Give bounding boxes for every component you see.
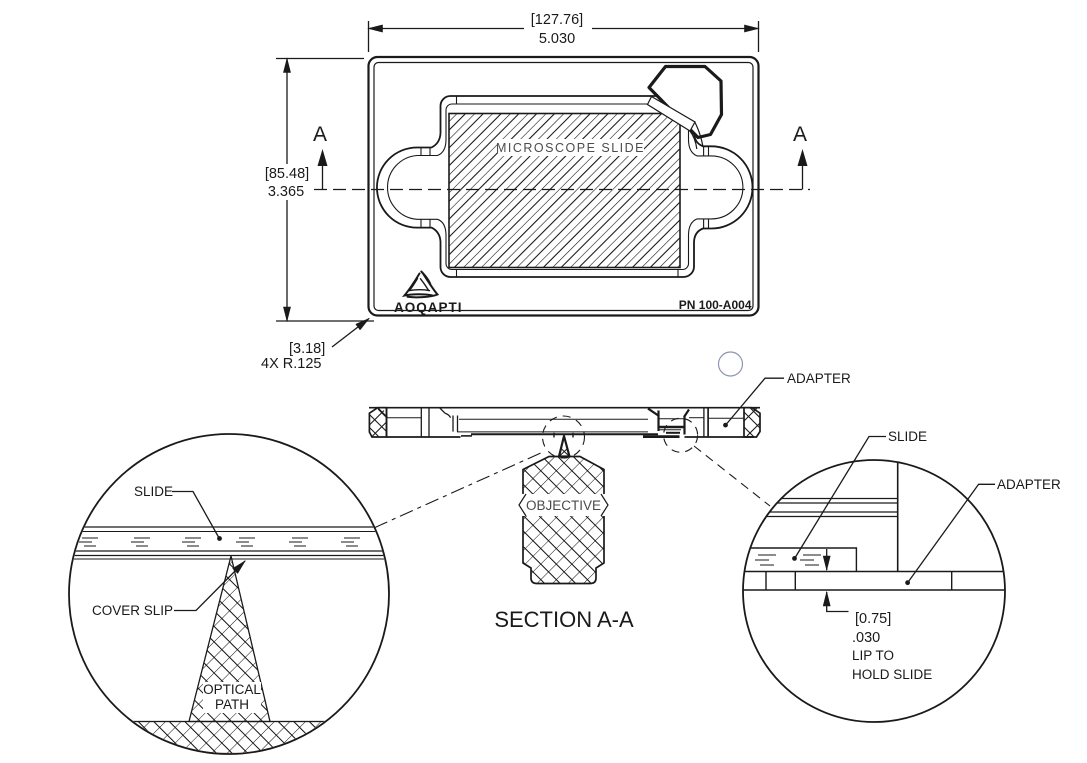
svg-text:5.030: 5.030 <box>539 31 575 47</box>
svg-text:[85.48]: [85.48] <box>265 166 309 182</box>
svg-text:A: A <box>313 123 327 146</box>
svg-text:AOQAPTI: AOQAPTI <box>394 300 463 315</box>
svg-text:[127.76]: [127.76] <box>531 12 583 28</box>
svg-text:LIP TO: LIP TO <box>852 648 894 663</box>
svg-text:SLIDE: SLIDE <box>134 484 173 499</box>
svg-text:A: A <box>793 123 807 146</box>
svg-text:SLIDE: SLIDE <box>888 429 927 444</box>
svg-text:ADAPTER: ADAPTER <box>997 477 1061 492</box>
svg-text:ADAPTER: ADAPTER <box>787 371 851 386</box>
svg-text:[3.18]: [3.18] <box>289 341 325 357</box>
svg-text:MICROSCOPE SLIDE: MICROSCOPE SLIDE <box>496 141 645 155</box>
svg-text:OPTICAL: OPTICAL <box>203 682 261 697</box>
svg-text:SECTION A-A: SECTION A-A <box>494 607 634 632</box>
svg-text:OBJECTIVE: OBJECTIVE <box>526 498 601 513</box>
svg-text:HOLD SLIDE: HOLD SLIDE <box>852 667 932 682</box>
svg-text:PATH: PATH <box>215 697 249 712</box>
svg-text:PN 100-A004: PN 100-A004 <box>679 298 752 312</box>
svg-text:3.365: 3.365 <box>268 184 304 200</box>
svg-text:COVER SLIP: COVER SLIP <box>92 603 173 618</box>
svg-text:.030: .030 <box>852 630 880 646</box>
svg-text:4X R.125: 4X R.125 <box>261 356 321 372</box>
svg-text:[0.75]: [0.75] <box>855 611 891 627</box>
